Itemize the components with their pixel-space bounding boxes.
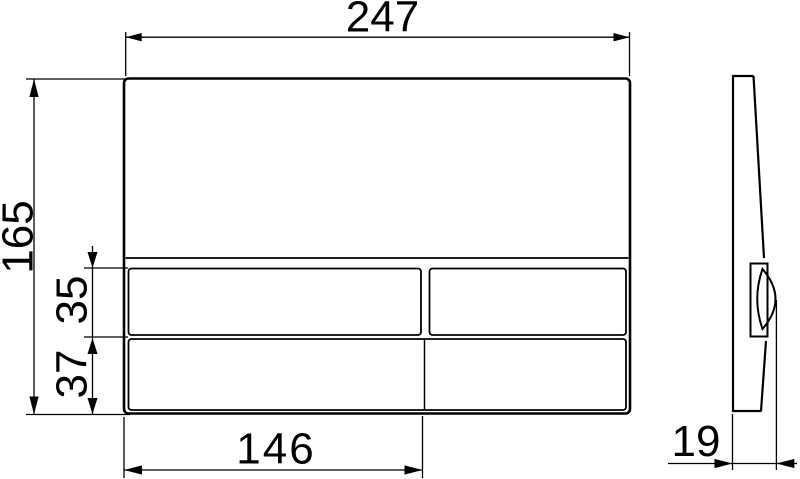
svg-text:146: 146 — [236, 425, 315, 474]
svg-text:35: 35 — [48, 276, 97, 325]
svg-text:165: 165 — [0, 200, 43, 273]
svg-text:19: 19 — [672, 417, 721, 466]
svg-text:37: 37 — [48, 350, 97, 399]
svg-text:247: 247 — [346, 0, 419, 42]
